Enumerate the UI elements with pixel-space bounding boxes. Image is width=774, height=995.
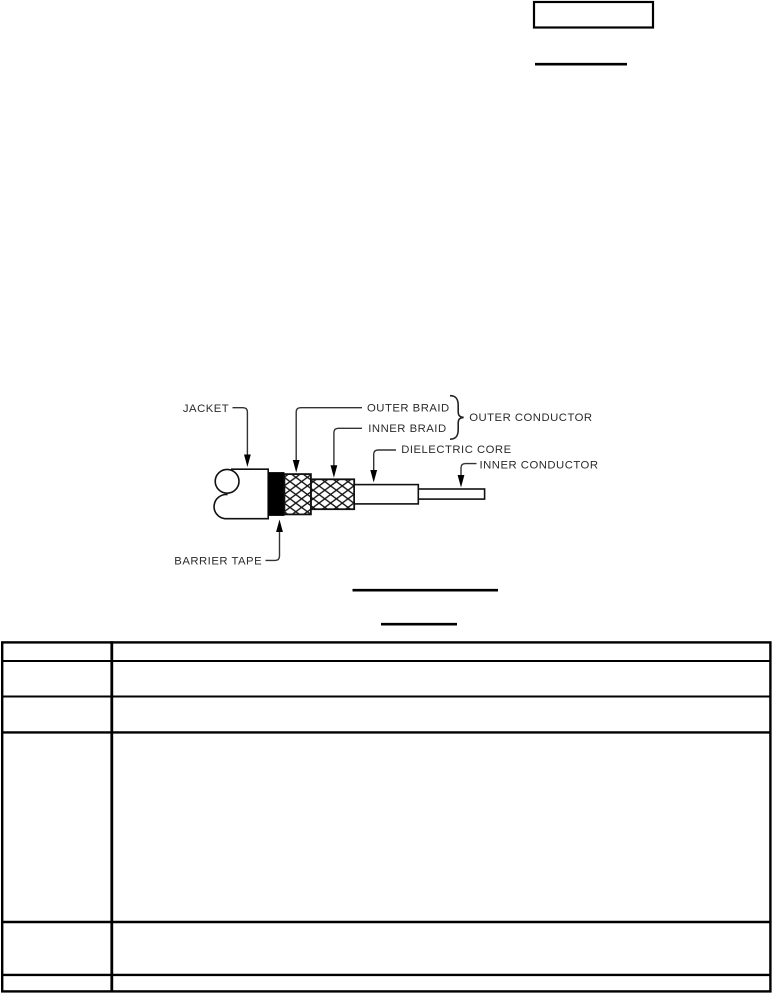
svg-text:JACKET: JACKET [183,403,229,415]
svg-text:OUTER CONDUCTOR: OUTER CONDUCTOR [469,412,592,424]
svg-text:OUTER BRAID: OUTER BRAID [367,402,450,414]
svg-text:INNER CONDUCTOR: INNER CONDUCTOR [480,459,599,471]
svg-text:INNER BRAID: INNER BRAID [368,423,446,435]
svg-text:BARRIER TAPE: BARRIER TAPE [174,555,262,567]
svg-text:DIELECTRIC CORE: DIELECTRIC CORE [401,444,511,456]
